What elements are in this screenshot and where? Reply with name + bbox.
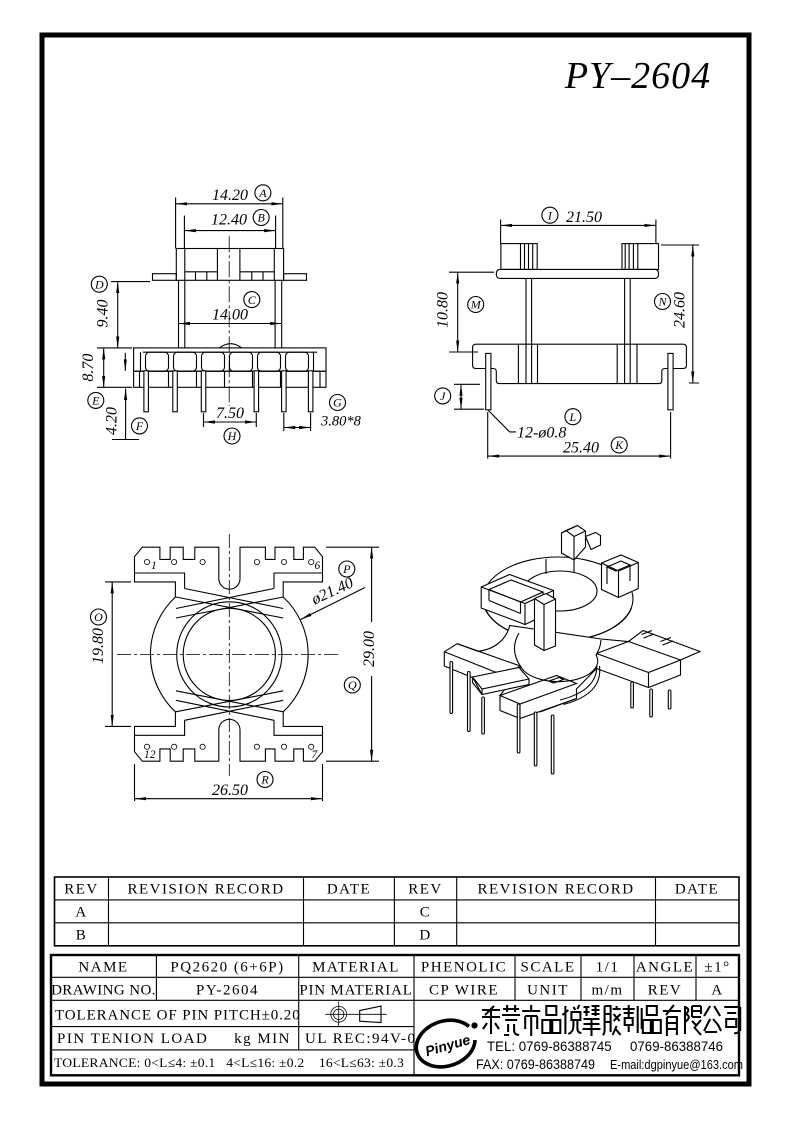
svg-text:NAME: NAME: [78, 960, 128, 976]
svg-text:E-mail:dgpinyue@163.com: E-mail:dgpinyue@163.com: [610, 1057, 743, 1072]
svg-text:J: J: [440, 389, 446, 403]
svg-text:12-ø0.8: 12-ø0.8: [517, 425, 566, 442]
svg-text:N: N: [657, 295, 667, 309]
svg-text:12.40: 12.40: [211, 212, 247, 229]
svg-text:PY–2604: PY–2604: [564, 55, 711, 97]
svg-text:PHENOLIC: PHENOLIC: [421, 960, 507, 976]
svg-text:PQ2620 (6+6P): PQ2620 (6+6P): [170, 960, 284, 976]
svg-text:1: 1: [151, 560, 157, 572]
svg-text:F: F: [135, 419, 144, 433]
svg-text:B: B: [258, 211, 266, 225]
svg-text:O: O: [94, 610, 103, 624]
svg-text:1/1: 1/1: [596, 960, 620, 976]
svg-text:21.50: 21.50: [566, 209, 602, 226]
svg-text:K: K: [614, 438, 624, 452]
svg-text:P: P: [342, 562, 351, 576]
svg-text:14.20: 14.20: [212, 187, 248, 204]
svg-text:PIN MATERIAL: PIN MATERIAL: [299, 983, 412, 999]
svg-text:FAX: 0769-86388749: FAX: 0769-86388749: [476, 1057, 595, 1072]
svg-text:DATE: DATE: [327, 882, 371, 898]
svg-text:REVISION RECORD: REVISION RECORD: [127, 882, 284, 898]
svg-text:9.40: 9.40: [95, 300, 112, 328]
svg-text:M: M: [470, 298, 482, 312]
svg-text:R: R: [260, 773, 269, 787]
svg-text:UNIT: UNIT: [527, 983, 569, 999]
svg-text:m/m: m/m: [591, 983, 623, 999]
svg-text:REVISION RECORD: REVISION RECORD: [477, 882, 634, 898]
svg-text:26.50: 26.50: [212, 782, 248, 799]
svg-text:10.80: 10.80: [435, 292, 452, 328]
svg-text:D: D: [419, 928, 431, 944]
svg-text:kg MIN: kg MIN: [234, 1031, 291, 1047]
svg-text:B: B: [76, 928, 88, 944]
svg-text:REV: REV: [64, 882, 99, 898]
svg-text:SCALE: SCALE: [520, 960, 575, 976]
svg-text:3.80*8: 3.80*8: [320, 414, 362, 430]
svg-text:8.70: 8.70: [80, 354, 97, 382]
svg-text:C: C: [248, 293, 257, 307]
svg-text:24.60: 24.60: [672, 292, 689, 328]
svg-text:D: D: [94, 277, 104, 291]
svg-text:H: H: [227, 429, 238, 443]
svg-text:CP WIRE: CP WIRE: [429, 983, 499, 999]
svg-text:6: 6: [315, 560, 321, 572]
svg-text:DRAWING NO.: DRAWING NO.: [51, 983, 156, 999]
svg-text:TOLERANCE: 0<L≤4: ±0.1 4<L≤1: TOLERANCE: 0<L≤4: ±0.1 4<L≤16: ±0.2 16<L…: [54, 1055, 404, 1070]
svg-text:7.50: 7.50: [216, 405, 244, 422]
svg-text:REV: REV: [648, 983, 683, 999]
svg-text:DATE: DATE: [675, 882, 719, 898]
svg-text:A: A: [258, 186, 267, 200]
svg-text:A: A: [75, 905, 87, 921]
svg-text:UL REC:94V-0: UL REC:94V-0: [305, 1031, 416, 1047]
svg-text:PY-2604: PY-2604: [196, 983, 259, 999]
svg-text:14.00: 14.00: [212, 307, 248, 324]
svg-text:A: A: [711, 983, 723, 999]
svg-text:C: C: [420, 905, 432, 921]
svg-text:12: 12: [144, 749, 156, 761]
svg-text:±1°: ±1°: [704, 960, 730, 976]
svg-text:ANGLE: ANGLE: [636, 960, 694, 976]
svg-text:G: G: [333, 396, 342, 410]
svg-text:TEL: 0769-86388745 0769-86: TEL: 0769-86388745 0769-86388746: [487, 1039, 723, 1054]
svg-text:MATERIAL: MATERIAL: [312, 960, 400, 976]
svg-text:25.40: 25.40: [563, 440, 599, 457]
svg-text:TOLERANCE OF PIN PITCH±0.20: TOLERANCE OF PIN PITCH±0.20: [55, 1008, 301, 1024]
svg-text:REV: REV: [408, 882, 443, 898]
svg-text:29.00: 29.00: [361, 631, 378, 667]
svg-text:4.20: 4.20: [104, 407, 121, 435]
svg-text:19.80: 19.80: [90, 628, 107, 664]
svg-text:PIN TENION LOAD: PIN TENION LOAD: [57, 1031, 208, 1047]
svg-text:Q: Q: [348, 678, 357, 692]
svg-text:L: L: [569, 410, 577, 424]
svg-text:E: E: [91, 394, 100, 408]
